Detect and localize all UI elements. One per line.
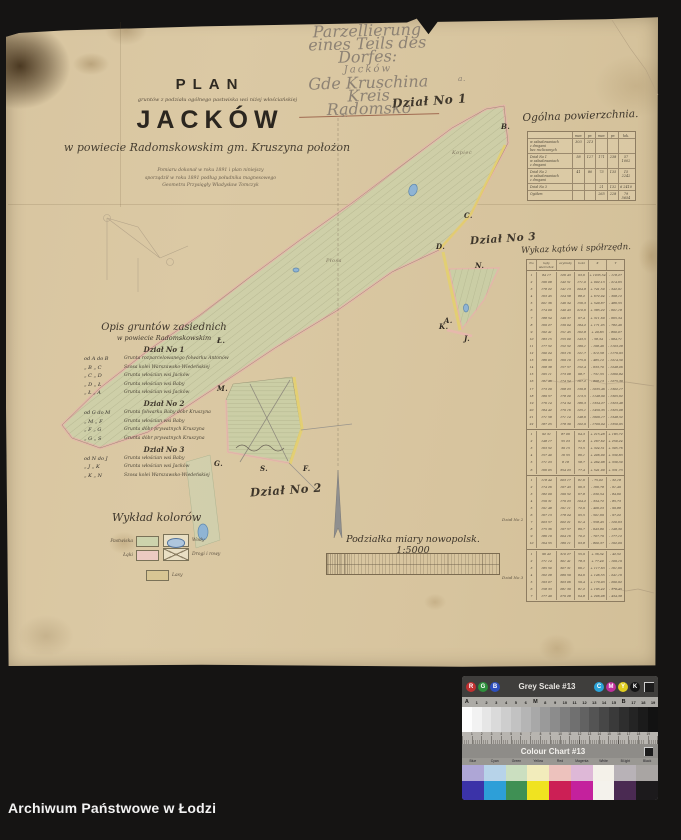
angles-cell: 55 23: [556, 438, 574, 445]
angles-cell: + 259,24: [606, 438, 624, 445]
angles-cell: 201 36: [536, 300, 556, 307]
angles-row: 11177 52152 52189,1- 198,46- 1103,28: [527, 343, 624, 350]
angles-cell: 6: [527, 307, 536, 314]
ruler-number: 2: [477, 732, 487, 736]
angles-cell: 16: [527, 378, 536, 385]
surveyor-note-line: Pomiaru dokonał w roku 1891 i plan ninie…: [128, 167, 293, 175]
angles-cell: 152,4: [574, 364, 588, 371]
angles-cell: 162 28: [536, 572, 556, 579]
angles-cell: - 61,49: [606, 484, 624, 491]
angles-cell: 64,8: [574, 593, 588, 600]
angles-margin-label: Dział No 2: [502, 517, 523, 522]
grey-step: [599, 707, 609, 732]
color-key-label: Wody: [192, 538, 204, 543]
angles-cell: 164 55: [536, 540, 556, 547]
angles-table-header: No kąty wierzchoł. azymuty boki X Y: [527, 260, 624, 271]
color-key-title: Wykład kolorów: [112, 511, 201, 524]
angles-cell: - 1606,17: [588, 414, 606, 421]
angles-cell: 186 03: [536, 357, 556, 364]
grey-scale-label: M: [531, 697, 541, 707]
legend-item: od G do MGrunta folwarku Baby dóbr Krusz…: [78, 410, 250, 416]
angles-cell: 8 18: [556, 459, 574, 466]
angles-cell: 21: [527, 414, 536, 421]
angles-cell: - 198,46: [588, 343, 606, 350]
grey-scale-label: 8: [540, 697, 550, 707]
area-cell: [595, 139, 607, 153]
angles-cell: 179 16: [556, 407, 574, 414]
ruler-number: 17: [624, 732, 634, 736]
angles-row: 192 3187 0664,3+ 215,48+ 183,72: [527, 431, 624, 438]
legend-item: „ J „ KGrunta włościan wsi Jacków: [78, 464, 250, 470]
map-letter: F.: [303, 464, 311, 473]
colour-patch-full-Black: [636, 781, 658, 800]
angles-cell: 163 45: [536, 293, 556, 300]
angles-cell: 171,0: [574, 279, 588, 286]
angles-row: 9192 41151 45162,8+ 49,83- 890,07: [527, 329, 624, 336]
angles-cell: 197 57: [556, 526, 574, 533]
angles-cell: 102,9: [574, 421, 588, 428]
area-cell: 132: [607, 184, 618, 190]
area-cell: [607, 139, 618, 153]
angles-cell: + 183,72: [606, 431, 624, 438]
angles-cell: 189 57: [536, 393, 556, 400]
area-cell: 135: [607, 169, 618, 183]
angles-coordinates-table: No kąty wierzchoł. azymuty boki X Y 184 …: [526, 259, 625, 602]
angles-cell: 167 13: [536, 512, 556, 519]
angles-cell: 3: [527, 565, 536, 572]
angles-cell: + 36,34: [588, 551, 606, 558]
centimetre-ruler: 12345678910111213141516171819: [462, 732, 658, 744]
angles-cell: 87 06: [556, 431, 574, 438]
angles-cell: - 230,54: [588, 491, 606, 498]
angles-cell: 175 36: [536, 526, 556, 533]
angles-cell: - 342,91: [606, 286, 624, 293]
neighbors-legend-sections: Dział No 1od A do BGrunta rozparcelowane…: [78, 345, 250, 479]
legend-item: „ G „ SGrunta dóbr prywatnych Kruszyna: [78, 436, 250, 442]
angles-row: 5191 48191 1172,9- 406,23- 99,88: [527, 505, 624, 512]
area-cell: 265: [595, 191, 607, 201]
legend-section: Dział No 3od N do JGrunta włościan wsi B…: [78, 445, 250, 479]
angles-cell: 3: [527, 445, 536, 452]
angles-cell: 64,3: [574, 431, 588, 438]
map-letter: C.: [464, 211, 473, 220]
angles-cell: - 118,27: [606, 272, 624, 279]
angles-row: 2171 14301 4178,3+ 77,40- 109,19: [527, 558, 624, 565]
angles-row: 184 17126 4393,6+ 1035,54- 118,27: [527, 272, 624, 279]
angles-cell: 93,8: [574, 540, 588, 547]
angles-cell: - 99,88: [606, 505, 624, 512]
angles-row: 4157 4016 5586,1+ 406,90+ 330,83: [527, 452, 624, 459]
angles-row: 18189 57178 20113,5- 1148,90- 1305,62: [527, 393, 624, 400]
angles-row: 5201 36146 34156,3+ 549,87- 486,55: [527, 300, 624, 307]
angles-cell: 151 45: [556, 329, 574, 336]
angles-row: 22187 25178 39102,9- 1709,04- 1350,95: [527, 421, 624, 428]
angles-cell: 204 16: [556, 533, 574, 540]
area-cell: [584, 191, 595, 201]
area-cell: 41: [572, 169, 584, 183]
angles-cell: - 214,65: [606, 279, 624, 286]
angles-row: 3163 5239 1573,5+ 324,51+ 305,76: [527, 445, 624, 452]
grey-scale-strip: [462, 707, 658, 732]
grey-step: [560, 707, 570, 732]
angles-cell: 301 41: [556, 558, 574, 565]
colour-patch-full-White: [593, 781, 615, 800]
angles-cell: 190 24: [536, 350, 556, 357]
grey-scale-title: Grey Scale #13: [502, 682, 592, 691]
grey-step: [609, 707, 619, 732]
angles-cell: 6: [527, 512, 536, 519]
angles-cell: + 549,87: [588, 300, 606, 307]
angles-row: 12190 24163 16121,7- 312,58- 1179,93: [527, 350, 624, 357]
area-table-row: Dział No 2 w zabudowaniach z drogami4180…: [528, 168, 635, 183]
area-cell: [618, 139, 633, 153]
angles-cell: 113,5: [574, 393, 588, 400]
angles-cell: 1: [527, 477, 536, 484]
angles-cell: 72,9: [574, 505, 588, 512]
angles-cell: 84 17: [536, 272, 556, 279]
angles-cell: 183 15: [536, 336, 556, 343]
legend-item-letters: „ M „ F: [84, 419, 120, 425]
colour-column-label: Yellow: [527, 758, 549, 765]
angles-cell: 186 19: [536, 533, 556, 540]
angles-cell: - 177,12: [606, 533, 624, 540]
angles-cell: 2: [527, 558, 536, 565]
angles-cell: - 166,78: [588, 484, 606, 491]
angles-cell: - 148,30: [606, 526, 624, 533]
angles-cell: - 434,38: [606, 593, 624, 600]
grey-step: [540, 707, 550, 732]
colour-patch-light-Magenta: [571, 765, 593, 781]
color-key-label: Pastwiska: [102, 539, 133, 544]
map-letter: Ł.: [217, 336, 225, 345]
angles-cell: 4: [527, 452, 536, 459]
angles-cell: + 331,73: [606, 467, 624, 474]
area-cell: 80: [584, 169, 595, 183]
angles-cell: - 890,07: [606, 329, 624, 336]
angles-cell: 1: [527, 272, 536, 279]
area-cell: [572, 184, 584, 190]
angles-cell: 2: [527, 484, 536, 491]
angles-cell: 196 08: [536, 279, 556, 286]
angles-cell: - 85,73: [606, 498, 624, 505]
angles-cell: - 1459,35: [588, 407, 606, 414]
ruler-number: 12: [575, 732, 585, 736]
area-cell: 171: [595, 154, 607, 168]
angles-cell: 146 34: [556, 300, 574, 307]
angles-cell: + 330,83: [606, 452, 624, 459]
angles-cell: 168 23: [556, 386, 574, 393]
angles-row: 3178 22141 13204,8+ 741,50- 342,91: [527, 286, 624, 293]
angles-cell: 179 23: [556, 498, 574, 505]
angles-row: 9186 19204 1670,2- 707,79- 177,12: [527, 533, 624, 540]
grey-scale-label: 11: [570, 697, 580, 707]
angles-row: 19176 14174 34186,3- 1334,27- 1323,48: [527, 400, 624, 407]
neighbors-legend-title: Opis gruntów zasiednich: [78, 322, 250, 333]
angles-cell: 188 54: [536, 315, 556, 322]
angles-cell: 17: [527, 386, 536, 393]
angles-cell: 203 17: [556, 477, 574, 484]
angles-cell: + 541,99: [588, 467, 606, 474]
colour-patch-light-Yellow: [527, 765, 549, 781]
legend-item-desc: Grunta rozparcelowanego folwarku Antonów: [124, 356, 229, 362]
angles-cell: 155 00: [556, 336, 574, 343]
angles-cell: - 1248,06: [606, 364, 624, 371]
ruler-number: 15: [604, 732, 614, 736]
area-col-header: mor.: [572, 132, 584, 138]
angles-row: 16181 46174 54167,2- 898,13- 1275,39: [527, 378, 624, 385]
legend-item: od A do BGrunta rozparcelowanego folwark…: [78, 356, 250, 362]
calibration-header-bar: RGB Grey Scale #13 CMYK: [462, 676, 658, 697]
angles-cell: 184 42: [536, 407, 556, 414]
angles-row: 3182 09199 5267,8- 230,54- 84,60: [527, 491, 624, 498]
legend-item-letters: „ F „ G: [84, 427, 120, 433]
angles-cell: 174 34: [556, 400, 574, 407]
angles-cell: 169 27: [536, 322, 556, 329]
colour-patch-full-Blue: [462, 781, 484, 800]
angles-cell: - 1148,90: [588, 393, 606, 400]
color-key-label: Drogi i rowy: [192, 552, 220, 557]
angles-cell: 93,6: [574, 272, 588, 279]
angles-cell: 124 58: [556, 293, 574, 300]
area-col-header: mor.: [595, 132, 607, 138]
angles-row: 21171 58171 14148,6- 1606,17- 1348,52: [527, 414, 624, 421]
angles-row: 8175 36197 5789,7- 643,80- 148,30: [527, 526, 624, 533]
angles-cell: 70,2: [574, 533, 588, 540]
colour-patch-light-Black: [636, 765, 658, 781]
angles-margin-label: Dział No 3: [502, 575, 523, 580]
angles-cell: - 984,71: [606, 336, 624, 343]
angles-row: 4159 31179 23104,2- 334,72- 85,73: [527, 498, 624, 505]
angles-cell: - 32,18: [606, 477, 624, 484]
angles-cell: 185 50: [536, 565, 556, 572]
triangulation-sketch: [104, 215, 189, 293]
ruler-number: 8: [536, 732, 546, 736]
legend-item-desc: Grunta włościan wsi Baby: [124, 382, 184, 388]
angles-table-body: 184 17126 4393,6+ 1035,54- 118,272196 08…: [527, 271, 624, 601]
angles-cell: - 109,19: [606, 558, 624, 565]
angles-cell: 8: [527, 322, 536, 329]
angles-cell: 5: [527, 459, 536, 466]
angles-cell: 96,3: [574, 484, 588, 491]
map-letter: K.: [439, 322, 449, 331]
angles-cell: 159 31: [536, 498, 556, 505]
legend-item-letters: „ B „ C: [84, 365, 120, 371]
area-table-row: Dział No 3211326 2410: [528, 183, 635, 190]
map-letter: S.: [260, 464, 268, 473]
angles-row: 5171 238 1858,7+ 464,98+ 339,30: [527, 459, 624, 466]
angles-cell: - 1709,04: [588, 421, 606, 428]
angles-cell: - 398,12: [606, 293, 624, 300]
angles-cell: 191 11: [556, 505, 574, 512]
angles-cell: 59,4: [574, 579, 588, 586]
angles-row: 6167 13178 2495,5- 501,69- 97,22: [527, 512, 624, 519]
color-calibration-card: RGB Grey Scale #13 CMYK A123456M89101112…: [462, 676, 658, 800]
ruler-number: 9: [545, 732, 555, 736]
angles-cell: + 267,62: [588, 438, 606, 445]
angles-cell: 202 21: [556, 519, 574, 526]
ruler-number: 11: [565, 732, 575, 736]
grey-scale-label: 18: [638, 697, 648, 707]
plan-title: PLAN: [150, 76, 270, 93]
angles-cell: - 290,92: [606, 579, 624, 586]
legend-item-desc: Grunta włościan wsi Baby: [124, 419, 184, 425]
angles-cell: 92 31: [536, 431, 556, 438]
legend-item: „ C „ DGrunta włościan wsi Jacków: [78, 373, 250, 379]
grey-scale-label: 10: [560, 697, 570, 707]
ruler-number: 10: [555, 732, 565, 736]
neighbors-legend: Opis gruntów zasiednich w powiecie Radom…: [78, 322, 250, 479]
area-cell: 6 2410: [618, 184, 633, 190]
angles-cell: 9: [527, 329, 536, 336]
angles-cell: 184,2: [574, 322, 588, 329]
area-cell: 79 5654: [618, 191, 633, 201]
legend-item-letters: „ C „ D: [84, 373, 120, 379]
colour-patch-light-Blue: [462, 765, 484, 781]
angles-cell: 125,1: [574, 407, 588, 414]
angles-cell: - 58,34: [588, 336, 606, 343]
surveyor-note-line: sporządził w roku 1891 podług południka …: [128, 175, 293, 183]
angles-cell: - 406,23: [588, 505, 606, 512]
angles-cell: + 206,08: [588, 593, 606, 600]
colour-column-labels: BlueCyanGreenYellowRedMagentaWhiteBl.lgh…: [462, 758, 658, 765]
angles-cell: 189,1: [574, 343, 588, 350]
angles-cell: + 385,22: [588, 307, 606, 314]
angles-cell: 168 38: [536, 364, 556, 371]
area-cell: 21: [595, 184, 607, 190]
angles-cell: 1: [527, 551, 536, 558]
angles-row: 14168 38157 57152,4- 633,70- 1248,06: [527, 364, 624, 371]
legend-item-letters: „ D „ Ł: [84, 382, 120, 388]
angles-cell: 354 23: [556, 467, 574, 474]
angles-cell: - 75,02: [588, 477, 606, 484]
color-dot-K: K: [630, 682, 640, 692]
angles-cell: 7: [527, 593, 536, 600]
color-dot-M: M: [606, 682, 616, 692]
legend-item: „ B „ CSzosa kolei Warszawsko-Wiedeńskie…: [78, 365, 250, 371]
ruler-numbers: 12345678910111213141516171819: [467, 732, 653, 736]
angles-cell: + 146,55: [588, 572, 606, 579]
angles-row: 2174 26197 4396,3- 166,78- 61,49: [527, 484, 624, 491]
area-cell: 213: [584, 139, 595, 153]
angles-cell: - 1103,28: [606, 343, 624, 350]
angles-cell: 176 14: [536, 400, 556, 407]
angles-cell: 10: [527, 540, 536, 547]
grey-scale-label: 15: [609, 697, 619, 707]
angles-row: 2148 1755 2391,8+ 267,62+ 259,24: [527, 438, 624, 445]
angles-group: 196 42310 2755,9+ 36,34- 42,522171 14301…: [527, 549, 624, 602]
angles-cell: 162,8: [574, 329, 588, 336]
angles-cell: 15: [527, 371, 536, 378]
col-boki: boki: [574, 260, 588, 270]
angles-cell: 7: [527, 315, 536, 322]
grey-scale-label: 5: [511, 697, 521, 707]
angles-cell: - 1325,08: [606, 407, 624, 414]
angles-cell: 18: [527, 393, 536, 400]
area-cell: 57 1002: [618, 154, 633, 168]
map-letter: G.: [214, 459, 223, 468]
ruler-number: 19: [643, 732, 653, 736]
angles-cell: 126 43: [556, 272, 574, 279]
ruler-number: 7: [526, 732, 536, 736]
angles-cell: 39 15: [556, 445, 574, 452]
angles-cell: - 601,18: [606, 307, 624, 314]
angles-cell: 22: [527, 421, 536, 428]
angles-cell: 12: [527, 350, 536, 357]
map-letter: N.: [475, 261, 484, 270]
angles-cell: 167,2: [574, 378, 588, 385]
angles-cell: 14: [527, 364, 536, 371]
grey-step: [511, 707, 521, 732]
legend-item-desc: Grunta włościan wsi Baby: [124, 456, 184, 462]
angles-cell: 77,4: [574, 467, 588, 474]
angles-row: 10164 55189 1193,8- 800,37- 192,09: [527, 540, 624, 547]
angles-cell: - 633,70: [588, 364, 606, 371]
colour-column-label: Green: [506, 758, 528, 765]
angles-cell: 279 28: [556, 593, 574, 600]
grey-step: [580, 707, 590, 732]
angles-cell: 2: [527, 279, 536, 286]
grey-scale-label: 17: [629, 697, 639, 707]
angles-row: 6174 09140 43210,6+ 385,22- 601,18: [527, 307, 624, 314]
angles-cell: 4: [527, 498, 536, 505]
area-row-label: w zabudowaniach z drogami bez rozliczony…: [528, 139, 572, 153]
angles-cell: - 120,63: [606, 519, 624, 526]
angles-cell: 175,9: [574, 357, 588, 364]
angles-cell: - 84,60: [606, 491, 624, 498]
angles-cell: 157 57: [556, 364, 574, 371]
legend-section: Dział No 2od G do MGrunta folwarku Baby …: [78, 399, 250, 442]
legend-item-desc: Grunta dóbr prywatnych Kruszyna: [124, 427, 205, 433]
angles-cell: 20: [527, 407, 536, 414]
angles-cell: 58,7: [574, 459, 588, 466]
legend-item-desc: Grunta dóbr prywatnych Kruszyna: [124, 436, 205, 442]
angles-cell: - 1323,48: [606, 400, 624, 407]
angles-cell: 143,5: [574, 336, 588, 343]
map-letter: B.: [501, 122, 510, 131]
saturated-patch-row: [462, 781, 658, 800]
area-row-label: Dział No 3: [528, 184, 572, 190]
grey-scale-label: 19: [648, 697, 658, 707]
angles-cell: 142 51: [556, 279, 574, 286]
legend-section-title: Dział No 1: [78, 345, 250, 354]
angles-cell: 197 43: [556, 484, 574, 491]
colour-patch-full-Bl.lght: [614, 781, 636, 800]
plan-subtitle-small: gruntów z podziału ogólnego pastwiska ws…: [110, 97, 325, 103]
angles-row: 4162 28289 5984,6+ 146,55- 241,16: [527, 572, 624, 579]
angles-cell: 5: [527, 505, 536, 512]
legend-item-letters: od N do J: [84, 456, 120, 462]
angles-row: 15195 11173 0898,7- 731,55- 1260,84: [527, 371, 624, 378]
angles-cell: + 77,40: [588, 558, 606, 565]
angles-cell: - 731,55: [588, 371, 606, 378]
colour-patch-light-Bl.lght: [614, 765, 636, 781]
angles-cell: 174 54: [556, 378, 574, 385]
rgb-dots: RGB: [466, 682, 500, 692]
angles-cell: 96 42: [536, 551, 556, 558]
angles-cell: 8: [527, 526, 536, 533]
angles-cell: - 241,16: [606, 572, 624, 579]
angles-cell: - 485,12: [588, 357, 606, 364]
col-x: X: [588, 260, 606, 270]
grey-scale-label: 6: [521, 697, 531, 707]
angles-cell: 61,4: [574, 519, 588, 526]
angles-cell: 307 31: [556, 565, 574, 572]
colour-column-label: Bl.lght: [614, 758, 636, 765]
angles-cell: 73,5: [574, 445, 588, 452]
angles-cell: + 311,69: [588, 315, 606, 322]
angles-cell: - 643,80: [588, 526, 606, 533]
pastel-patch-row: [462, 765, 658, 781]
